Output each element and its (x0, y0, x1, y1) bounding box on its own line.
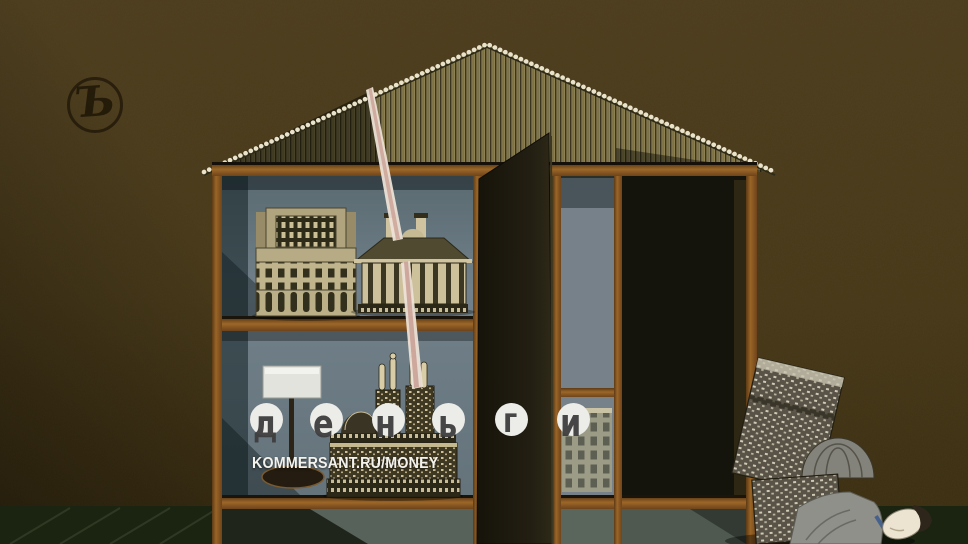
wordmark-letter: е (313, 405, 334, 443)
kommersant-logo: Ъ (67, 77, 123, 133)
wordmark-circle: г (495, 403, 528, 436)
wordmark-letter: и (560, 404, 581, 442)
kommersant-logo-glyph: Ъ (73, 80, 116, 125)
wordmark-circle: н (372, 403, 405, 436)
site-url: KOMMERSANT.RU/MONEY (252, 455, 439, 473)
wordmark-letter: ь (438, 405, 457, 443)
wordmark-circle: и (557, 403, 590, 436)
open-door (477, 133, 553, 544)
wordmark-letter: г (503, 404, 517, 438)
wordmark-letter: н (375, 405, 396, 443)
cover-illustration (0, 0, 968, 544)
wordmark-circle: е (310, 403, 343, 436)
building-model-palace (252, 208, 360, 321)
magazine-cover: Ъ д е н ь г и KOMMERSANT.RU/MONEY (0, 0, 968, 544)
wordmark-circle: д (250, 403, 283, 436)
wordmark-letter: д (253, 405, 278, 443)
wordmark-circle: ь (432, 403, 465, 436)
